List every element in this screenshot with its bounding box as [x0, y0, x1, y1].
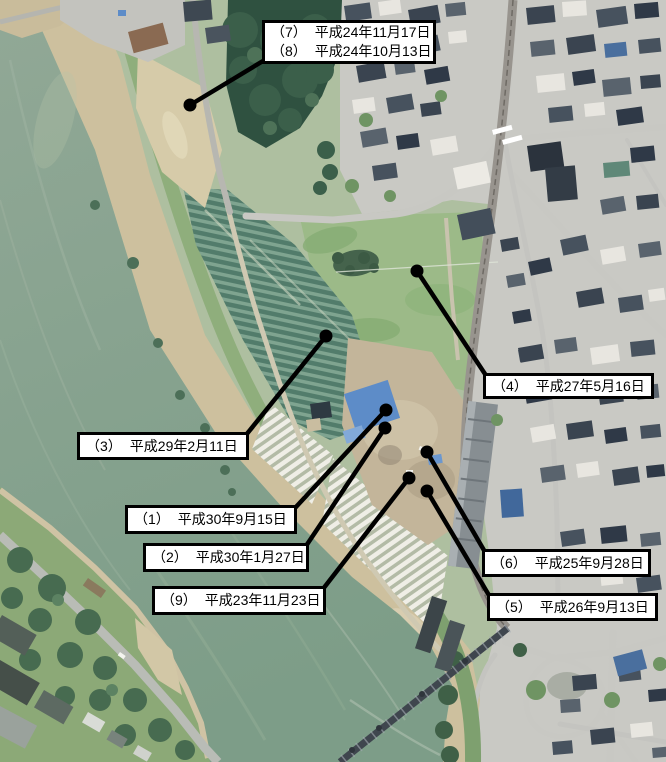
location-marker-site-9 [403, 472, 416, 485]
annotation-label-site-5: （5）平成26年9月13日 [487, 593, 658, 621]
annotation-label-site-4: （4）平成27年5月16日 [483, 373, 654, 399]
annotation-label-site-1: （1）平成30年9月15日 [125, 505, 297, 534]
annotation-entry: （2）平成30年1月27日 [152, 548, 302, 567]
location-marker-site-6 [421, 446, 434, 459]
annotation-entry: （5）平成26年9月13日 [496, 598, 651, 617]
location-marker-site-7-8 [184, 99, 197, 112]
annotation-number: （3） [86, 437, 122, 456]
annotation-date: 平成26年9月13日 [540, 598, 649, 617]
leader-line-site-7-8 [190, 61, 263, 105]
annotation-date: 平成29年2月11日 [130, 437, 238, 456]
annotation-date: 平成25年9月28日 [535, 554, 644, 573]
annotation-entry: （9）平成23年11月23日 [161, 591, 319, 610]
annotation-label-site-9: （9）平成23年11月23日 [152, 586, 326, 615]
annotation-date: 平成24年10月13日 [315, 42, 432, 61]
annotation-entry: （6）平成25年9月28日 [491, 554, 644, 573]
location-marker-site-1 [380, 404, 393, 417]
annotation-label-site-7-8: （7）平成24年11月17日（8）平成24年10月13日 [262, 20, 436, 64]
annotation-label-site-6: （6）平成25年9月28日 [482, 549, 651, 577]
location-marker-site-5 [421, 485, 434, 498]
annotation-number: （4） [492, 377, 528, 396]
annotation-entry: （7）平成24年11月17日 [271, 23, 429, 42]
annotation-date: 平成30年9月15日 [178, 510, 287, 529]
leader-line-site-2 [306, 428, 385, 546]
leader-line-site-9 [323, 478, 409, 589]
annotation-label-site-2: （2）平成30年1月27日 [143, 543, 309, 572]
annotation-label-site-3: （3）平成29年2月11日 [77, 432, 249, 460]
annotation-number: （7） [271, 23, 307, 42]
location-marker-site-4 [411, 265, 424, 278]
annotation-date: 平成27年5月16日 [536, 377, 645, 396]
annotation-number: （6） [491, 554, 527, 573]
annotation-number: （9） [161, 591, 197, 610]
annotation-number: （8） [271, 42, 307, 61]
location-marker-site-3 [320, 330, 333, 343]
annotation-date: 平成23年11月23日 [205, 591, 321, 610]
annotation-entry: （3）平成29年2月11日 [86, 437, 242, 456]
annotation-date: 平成24年11月17日 [315, 23, 431, 42]
annotation-number: （1） [134, 510, 170, 529]
annotation-entry: （8）平成24年10月13日 [271, 42, 429, 61]
annotation-entry: （4）平成27年5月16日 [492, 377, 647, 396]
annotation-number: （2） [152, 548, 188, 567]
annotation-number: （5） [496, 598, 532, 617]
leader-line-site-3 [246, 336, 326, 435]
annotated-aerial-map: （7）平成24年11月17日（8）平成24年10月13日（4）平成27年5月16… [0, 0, 666, 762]
annotation-date: 平成30年1月27日 [196, 548, 305, 567]
leader-line-site-4 [417, 271, 487, 377]
location-marker-site-2 [379, 422, 392, 435]
annotation-entry: （1）平成30年9月15日 [134, 510, 290, 529]
